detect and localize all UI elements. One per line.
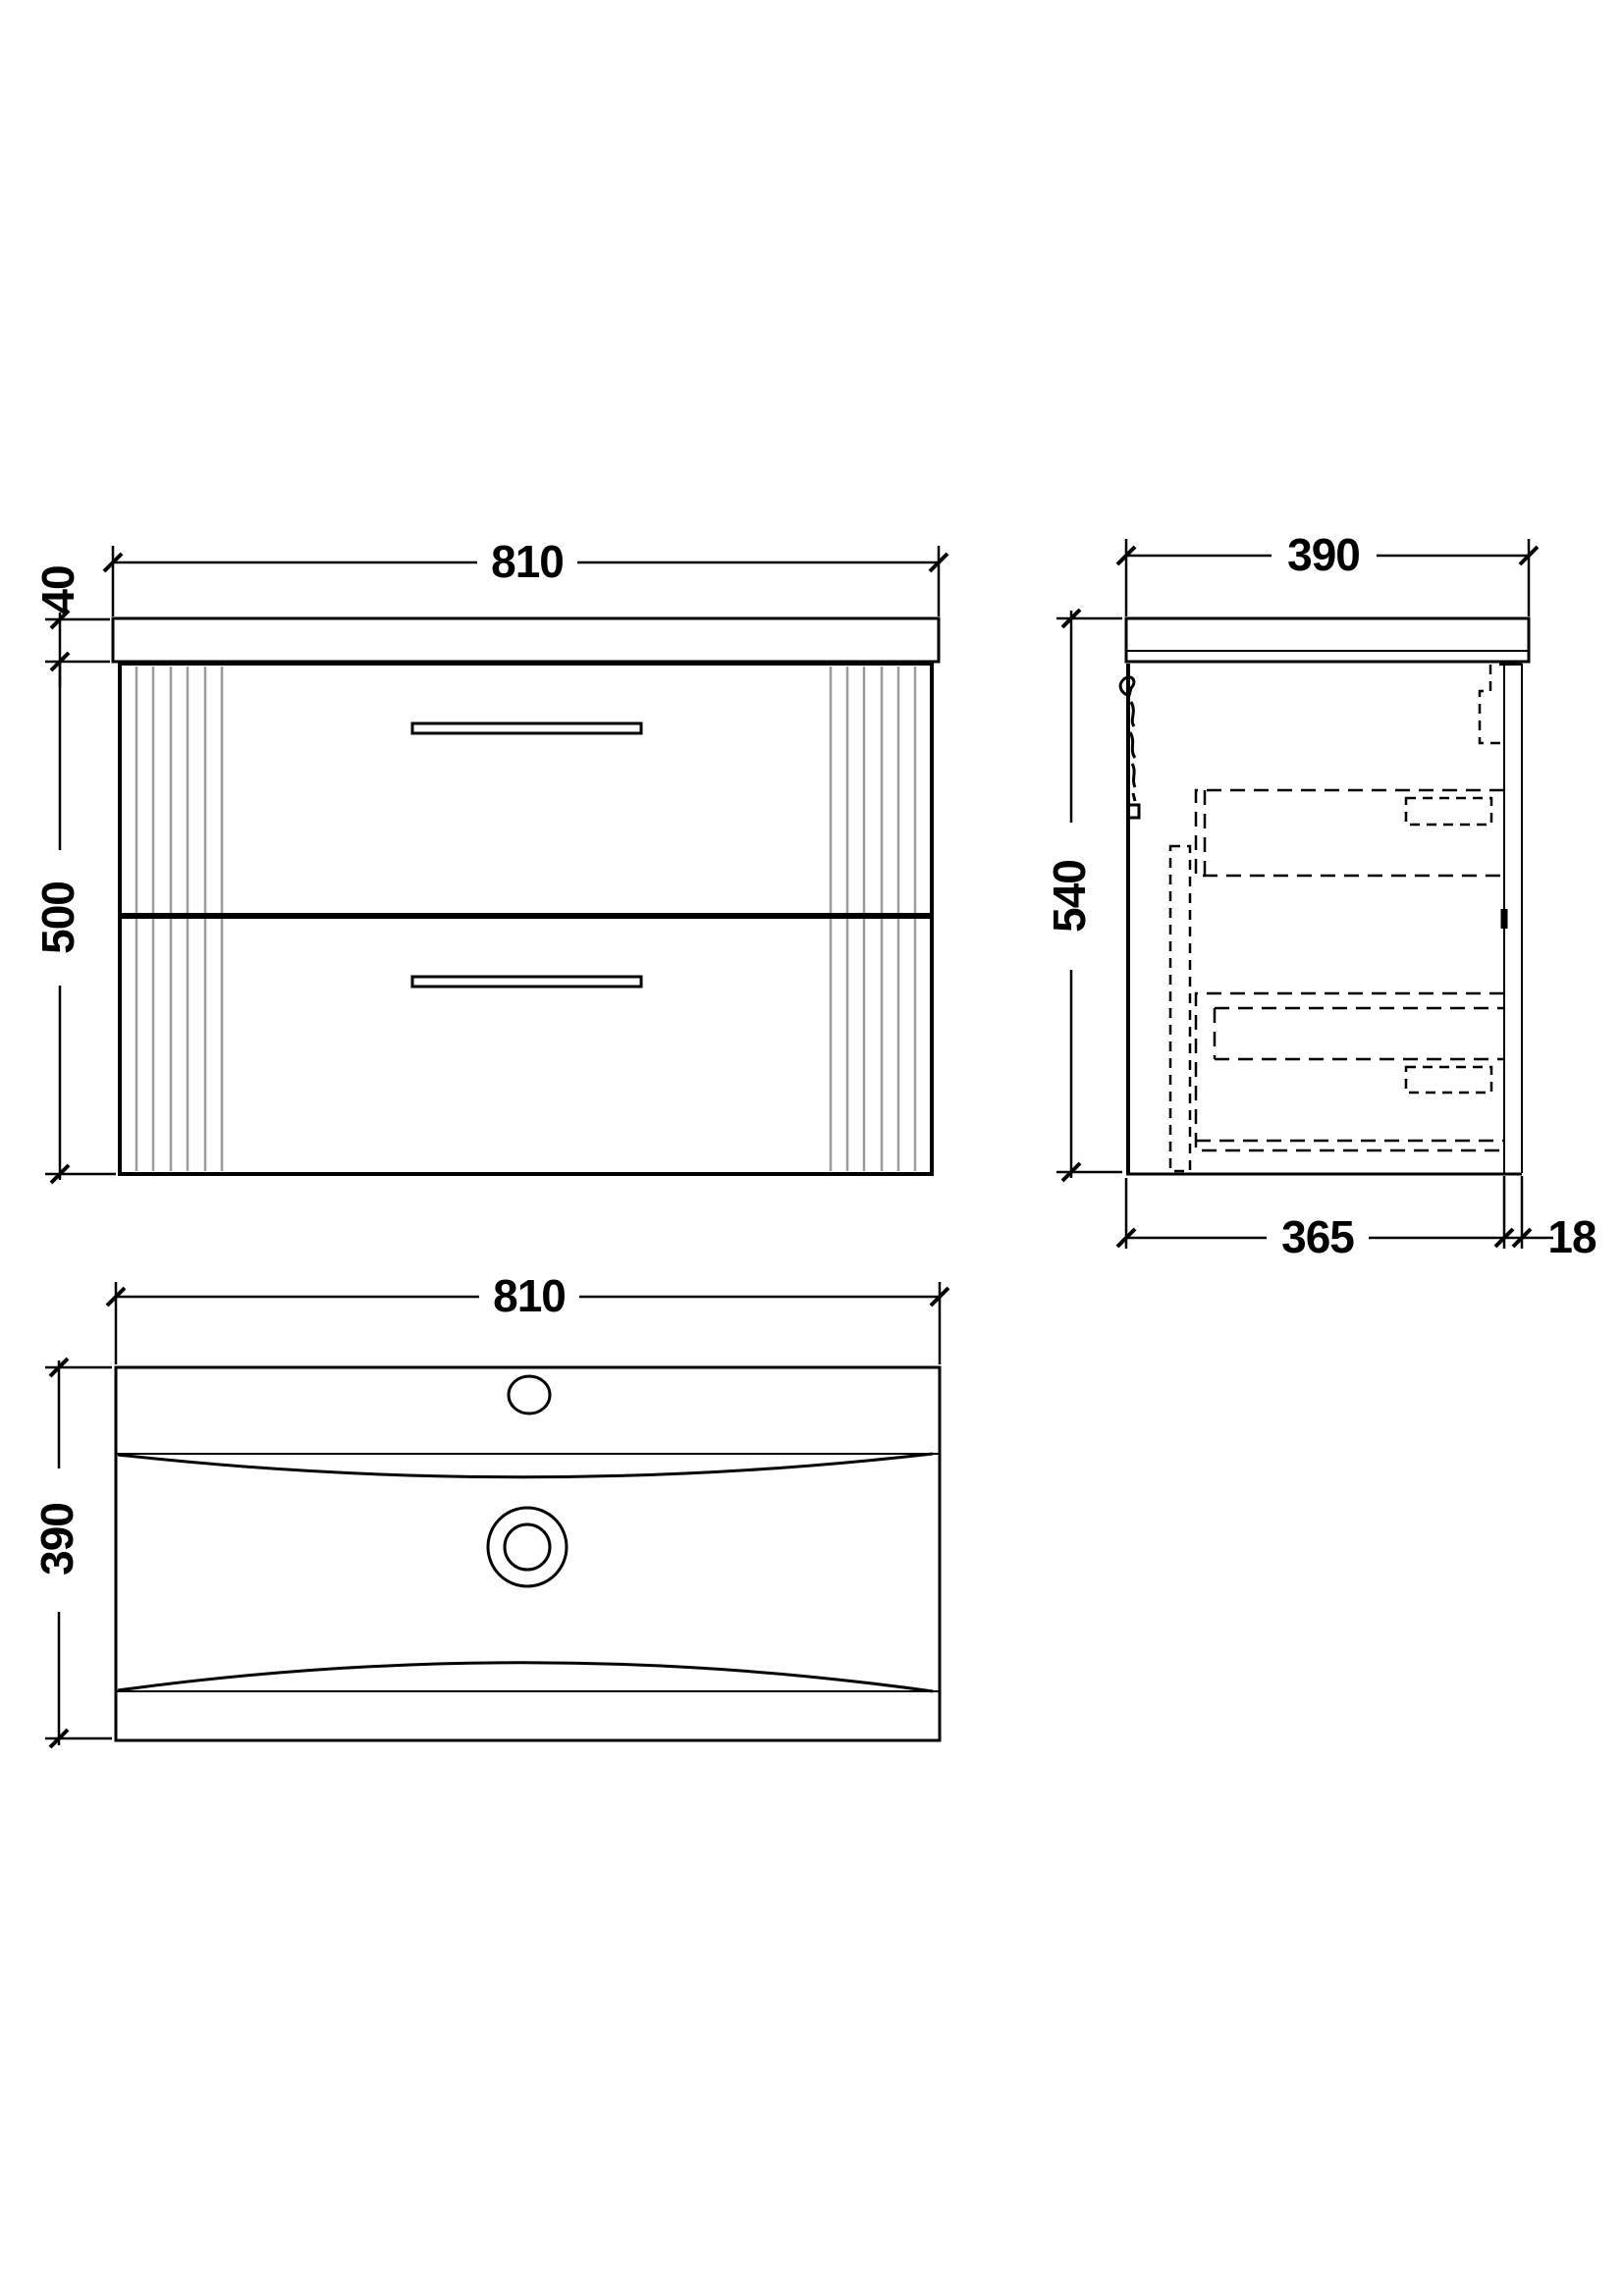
squiggle-stroke [1131,702,1134,726]
waste-outer-ring [488,1508,567,1586]
dim-label-plan-width: 810 [493,1270,566,1321]
technical-drawing-page: 810 40 500 [0,0,1623,2296]
dim-side-height: 540 [1044,610,1122,1181]
dim-side-depth: 390 [1117,529,1538,616]
squiggle-stroke [1132,764,1135,787]
drawer-box-outline [1196,790,1504,876]
side-view: 390 540 [1044,529,1596,1262]
lower-drawer-hidden [1196,993,1504,1150]
dim-label-cabinet-height: 500 [32,881,83,954]
drawer-runner-hidden [1406,1067,1491,1093]
drawer-handle-top [412,723,641,733]
drawing-svg: 810 40 500 [0,0,1623,2296]
basin-front-bowl-curve [118,1663,933,1691]
dim-label-cabinet-depth: 365 [1281,1211,1354,1262]
wall-bracket-hidden [1480,665,1504,743]
plan-view: 810 390 [31,1270,948,1747]
dim-cabinet-height: 500 [32,662,116,1183]
side-worktop [1126,618,1529,662]
dim-plan-width: 810 [107,1270,948,1364]
squiggle-stroke [1130,732,1135,758]
basin-rear-bowl-curve [118,1454,933,1477]
basin-outline [116,1367,940,1740]
dim-front-width: 810 [104,536,947,616]
dim-cabinet-depth: 365 18 [1117,1176,1596,1262]
waste-pipe-hidden [1170,846,1190,1171]
tap-hole [509,1376,550,1414]
dim-label-plan-depth: 390 [31,1503,82,1575]
dim-plan-depth: 390 [31,1359,112,1747]
waste-inner-ring [505,1524,550,1570]
dim-label-worktop: 40 [32,565,83,614]
dim-label-side-depth: 390 [1287,529,1360,580]
dim-label-back-panel: 18 [1547,1211,1596,1262]
dim-worktop-thickness: 40 [32,565,110,687]
dim-label-front-width: 810 [491,536,564,587]
upper-drawer-hidden [1196,790,1504,876]
drawer-runner-hidden [1406,798,1491,825]
dim-label-side-height: 540 [1044,860,1095,933]
drawer-handle-bottom [412,977,641,987]
side-back-panel [1499,664,1522,1173]
front-view: 810 40 500 [32,536,947,1183]
front-worktop [113,618,939,662]
drawer-box-outline [1196,993,1504,1150]
squiggle-stroke [1133,793,1135,801]
